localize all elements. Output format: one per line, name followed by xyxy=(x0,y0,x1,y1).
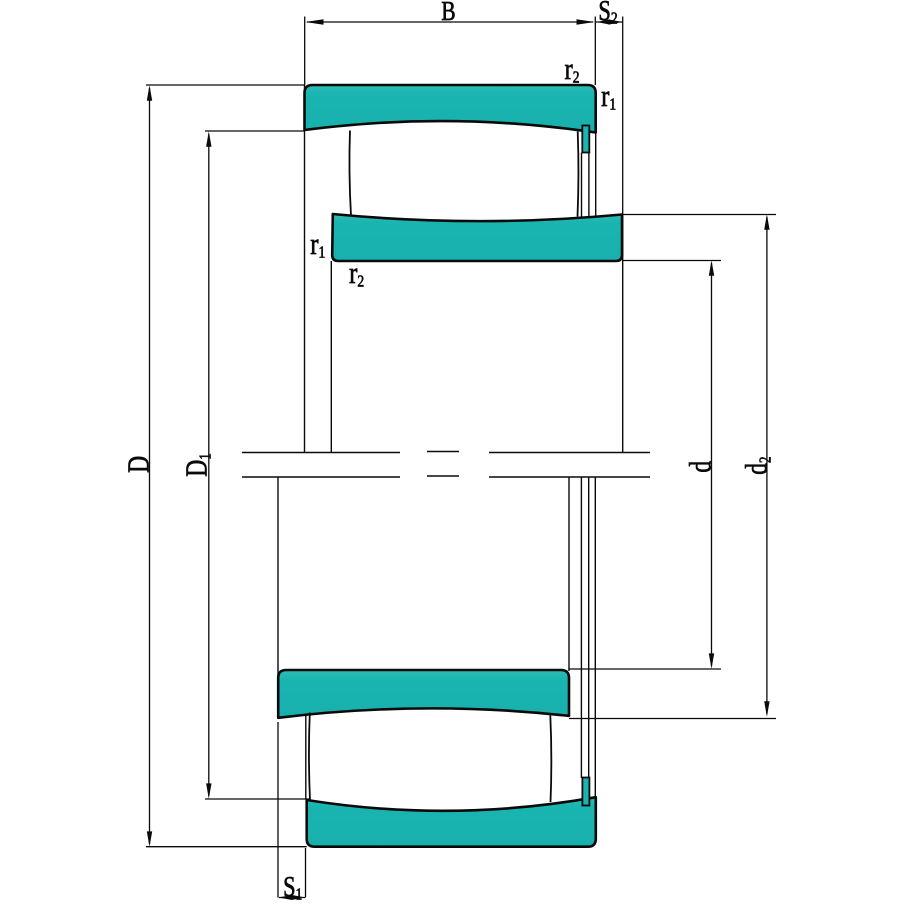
svg-text:S2: S2 xyxy=(598,0,617,28)
svg-text:D: D xyxy=(120,456,155,473)
svg-text:d2: d2 xyxy=(738,456,775,474)
svg-text:B: B xyxy=(441,0,455,27)
svg-text:D1: D1 xyxy=(178,453,215,476)
svg-text:r1: r1 xyxy=(601,79,616,113)
svg-text:S1: S1 xyxy=(283,872,302,900)
svg-text:r2: r2 xyxy=(564,52,579,86)
svg-text:r1: r1 xyxy=(310,227,325,261)
svg-text:d: d xyxy=(682,461,717,473)
